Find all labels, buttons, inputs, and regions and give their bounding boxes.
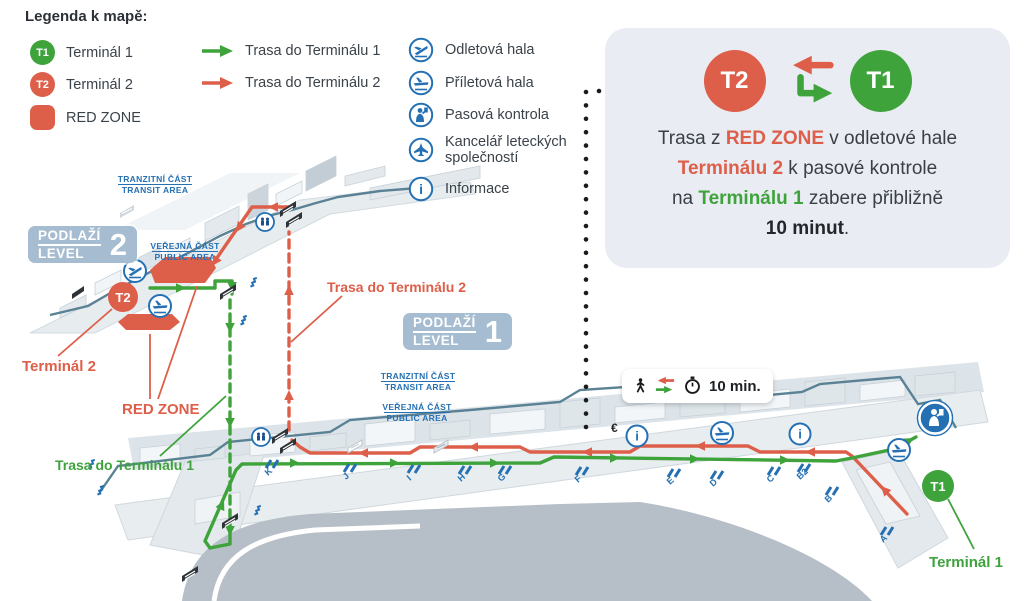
- route-info-text: Trasa z RED ZONE v odletové hale Terminá…: [605, 124, 1010, 244]
- currency-exchange-icon: €: [611, 421, 618, 435]
- level1-transit-label: TRANZITNÍ ČÁST TRANSIT AREA: [381, 370, 456, 392]
- legend-red-zone-label: RED ZONE: [66, 110, 141, 126]
- legend-facility-arrival: Příletová hala: [408, 70, 534, 96]
- legend-facility-departure: Odletová hala: [408, 37, 534, 63]
- level1-map: TRANZITNÍ ČÁST TRANSIT AREA VEŘEJNÁ ČÁST…: [100, 362, 988, 601]
- passport-control-icon: [918, 401, 953, 436]
- level1-badge: PODLAŽÍ LEVEL 1: [403, 313, 512, 350]
- svg-text:T2: T2: [115, 290, 130, 305]
- swap-arrows-icon: [780, 50, 836, 112]
- elevator-icon: [252, 428, 270, 446]
- svg-text:PUBLIC AREA: PUBLIC AREA: [154, 252, 215, 262]
- legend-terminal2: T2 Terminál 2: [30, 72, 133, 97]
- svg-text:E: E: [665, 475, 676, 486]
- map-t2-badge: T2: [108, 282, 138, 312]
- floor-word: PODLAŽÍ: [413, 315, 476, 333]
- swap-arrows-icon: [654, 376, 676, 396]
- arrival-hall-icon: [711, 422, 733, 444]
- t2-badge: T2: [704, 50, 766, 112]
- information-icon: i: [408, 176, 434, 202]
- level1-public-label: VEŘEJNÁ ČÁST PUBLIC AREA: [382, 401, 452, 423]
- apron: [182, 502, 872, 601]
- route2-map-label: Trasa do Terminálu 2: [327, 279, 466, 295]
- legend-title: Legenda k mapě:: [25, 8, 148, 25]
- information-icon: i: [790, 424, 811, 445]
- stopwatch-icon: [683, 376, 702, 396]
- floor-word: PODLAŽÍ: [38, 228, 101, 246]
- legend-facility-information: i Informace: [408, 176, 509, 202]
- t1-badge: T1: [30, 40, 55, 65]
- svg-text:i: i: [798, 427, 802, 442]
- legend-facility-label: Kancelář leteckých společností: [445, 134, 605, 166]
- t1-badge: T1: [850, 50, 912, 112]
- svg-text:PUBLIC AREA: PUBLIC AREA: [386, 413, 447, 423]
- level-number: 2: [110, 227, 127, 263]
- level2-public-label: VEŘEJNÁ ČÁST PUBLIC AREA: [150, 240, 220, 262]
- legend-facility-label: Odletová hala: [445, 42, 534, 58]
- terminal1-map-label: Terminál 1: [929, 554, 1003, 571]
- airport-map-page: TRANZITNÍ ČÁST TRANSIT AREA VEŘEJNÁ ČÁST…: [0, 0, 1024, 601]
- svg-text:VEŘEJNÁ ČÁST: VEŘEJNÁ ČÁST: [382, 401, 452, 412]
- legend-terminal2-label: Terminál 2: [66, 77, 133, 93]
- arrival-hall-icon: [888, 439, 910, 461]
- level-number: 1: [485, 314, 502, 350]
- legend-facility-label: Pasová kontrola: [445, 107, 549, 123]
- svg-text:TRANSIT AREA: TRANSIT AREA: [122, 185, 189, 195]
- airline-offices-icon: [408, 137, 434, 163]
- legend-route1-label: Trasa do Terminálu 1: [245, 43, 380, 59]
- red-zone-swatch: [30, 105, 55, 130]
- info-panel-terminals: T2 T1: [605, 50, 1010, 112]
- svg-text:VEŘEJNÁ ČÁST: VEŘEJNÁ ČÁST: [150, 240, 220, 251]
- level2-badge: PODLAŽÍ LEVEL 2: [28, 226, 137, 263]
- svg-text:i: i: [419, 181, 423, 197]
- route1-map-label: Trasa do Terminálu 1: [55, 457, 194, 473]
- svg-text:TRANSIT AREA: TRANSIT AREA: [385, 382, 452, 392]
- map-t1-badge: T1: [922, 470, 954, 502]
- elevator-icon: [256, 213, 274, 231]
- svg-text:TRANZITNÍ ČÁST: TRANZITNÍ ČÁST: [118, 173, 193, 184]
- red-route-arrow-icon: [200, 76, 234, 90]
- level2-transit-label: TRANZITNÍ ČÁST TRANSIT AREA: [118, 173, 193, 195]
- legend-facility-passport: Pasová kontrola: [408, 102, 549, 128]
- svg-text:TRANZITNÍ ČÁST: TRANZITNÍ ČÁST: [381, 370, 456, 381]
- passport-control-icon: [408, 102, 434, 128]
- walk-time-badge: 10 min.: [622, 369, 773, 403]
- legend-terminal1-label: Terminál 1: [66, 45, 133, 61]
- legend-facility-label: Příletová hala: [445, 75, 534, 91]
- arrival-hall-icon: [149, 295, 171, 317]
- svg-text:i: i: [635, 429, 639, 444]
- legend-terminal1: T1 Terminál 1: [30, 40, 133, 65]
- walk-time-label: 10 min.: [709, 378, 761, 395]
- legend-facility-airlines: Kancelář leteckých společností: [408, 134, 605, 166]
- terminal2-map-label: Terminál 2: [22, 358, 96, 375]
- legend-route2: Trasa do Terminálu 2: [200, 75, 380, 91]
- departure-hall-icon: [124, 260, 146, 282]
- legend-red-zone: RED ZONE: [30, 105, 141, 130]
- route-info-panel: T2 T1 Trasa z RED ZONE v odletové hale T…: [605, 28, 1010, 268]
- legend-route1: Trasa do Terminálu 1: [200, 43, 380, 59]
- arrival-hall-icon: [408, 70, 434, 96]
- legend-facility-label: Informace: [445, 181, 509, 197]
- walking-person-icon: [634, 376, 647, 396]
- level-word: LEVEL: [38, 246, 101, 261]
- svg-text:T1: T1: [930, 479, 945, 494]
- information-icon: i: [627, 426, 648, 447]
- green-route-arrow-icon: [200, 44, 234, 58]
- departure-hall-icon: [408, 37, 434, 63]
- legend-route2-label: Trasa do Terminálu 2: [245, 75, 380, 91]
- t2-badge: T2: [30, 72, 55, 97]
- level-word: LEVEL: [413, 333, 476, 348]
- red-zone-map-label: RED ZONE: [122, 401, 200, 418]
